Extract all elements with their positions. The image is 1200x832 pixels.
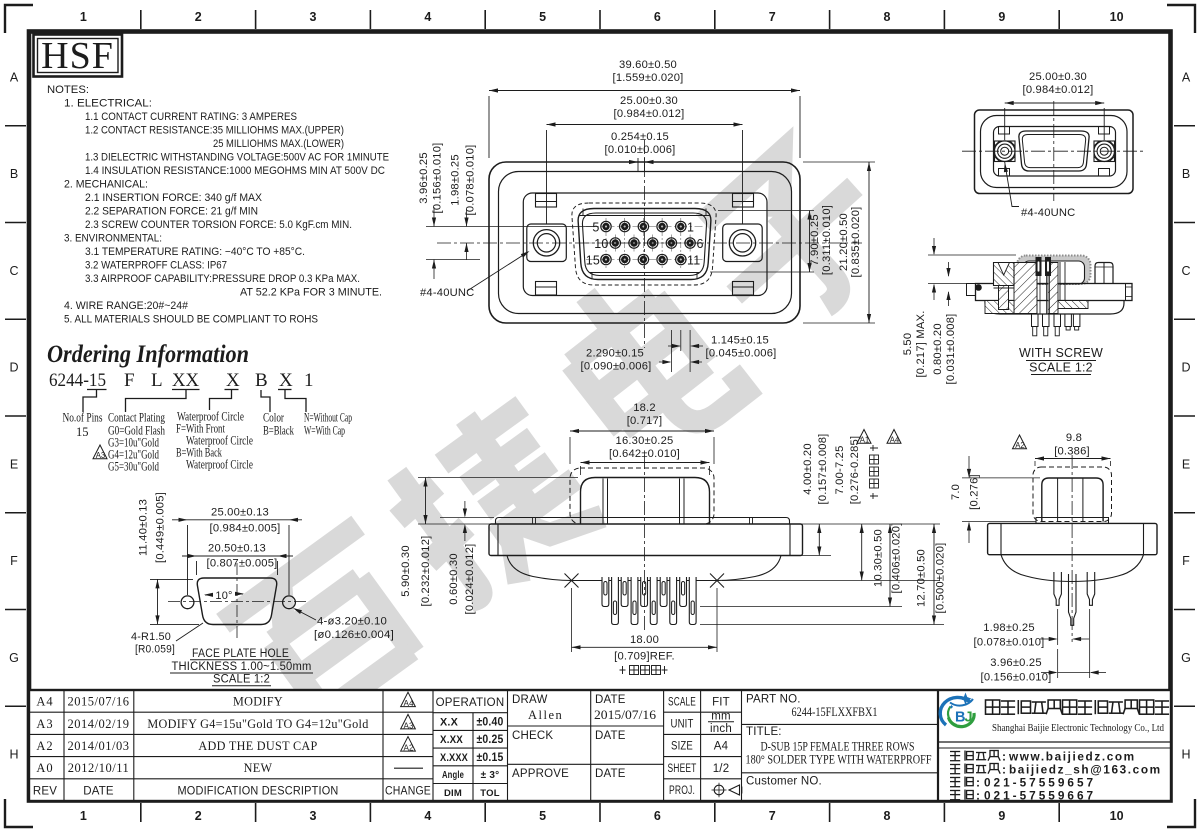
svg-text:5: 5 <box>592 221 599 235</box>
svg-text:7.00-7.25: 7.00-7.25 <box>834 445 846 494</box>
svg-text:AT 52.2 KPa FOR 3 MINUTE.: AT 52.2 KPa FOR 3 MINUTE. <box>240 287 382 299</box>
svg-text:4: 4 <box>424 10 431 24</box>
svg-text:18.00: 18.00 <box>630 634 659 646</box>
svg-text:[0.078±0.010]: [0.078±0.010] <box>465 145 477 216</box>
svg-text:3: 3 <box>310 10 317 24</box>
svg-text:10: 10 <box>594 237 608 251</box>
svg-text:A2: A2 <box>1015 441 1025 450</box>
svg-text:baijiedz_sh@163.com: baijiedz_sh@163.com <box>1009 763 1162 777</box>
svg-text:1: 1 <box>304 370 314 391</box>
svg-text:16.30±0.25: 16.30±0.25 <box>616 435 674 447</box>
svg-text:F: F <box>1182 554 1190 568</box>
svg-text:No.of Pins: No.of Pins <box>63 411 103 425</box>
svg-text:SCALE: SCALE <box>668 696 696 708</box>
svg-text:3.3 AIRPROOF CAPABILITY:PRESSU: 3.3 AIRPROOF CAPABILITY:PRESSURE DROP 0.… <box>85 273 360 285</box>
svg-text:[0.232±0.012]: [0.232±0.012] <box>420 536 432 607</box>
svg-text:B: B <box>255 370 268 391</box>
svg-text:[0.386]: [0.386] <box>1054 446 1090 458</box>
svg-text:MODIFICATION DESCRIPTION: MODIFICATION DESCRIPTION <box>178 785 339 797</box>
svg-text::: : <box>976 789 980 803</box>
svg-text:3: 3 <box>310 809 317 823</box>
svg-text:Allen: Allen <box>528 708 563 722</box>
svg-text:3.96±0.25: 3.96±0.25 <box>990 657 1042 669</box>
svg-text:D: D <box>1181 361 1190 375</box>
svg-text:X: X <box>226 370 240 391</box>
svg-text:1: 1 <box>80 809 87 823</box>
svg-text:11.40±0.13: 11.40±0.13 <box>138 499 150 556</box>
svg-text:20.50±0.13: 20.50±0.13 <box>208 543 266 555</box>
svg-text:[0.217] MAX.: [0.217] MAX. <box>915 310 927 377</box>
svg-text:2.290±0.15: 2.290±0.15 <box>586 348 644 360</box>
svg-text:DATE: DATE <box>83 785 114 797</box>
svg-text:4: 4 <box>424 809 431 823</box>
svg-text:21.20±0.50: 21.20±0.50 <box>838 213 850 271</box>
svg-text:2.1 INSERTION FORCE: 340 g/f M: 2.1 INSERTION FORCE: 340 g/f MAX <box>85 192 262 204</box>
svg-text:A2: A2 <box>404 743 414 752</box>
svg-text:5.50: 5.50 <box>902 333 914 356</box>
svg-text:1.4 INSULATION RESISTANCE:1000: 1.4 INSULATION RESISTANCE:1000 MEGOHMS M… <box>85 165 385 177</box>
svg-text:15: 15 <box>586 254 600 268</box>
svg-text:2.3 SCREW COUNTER TORSION FORC: 2.3 SCREW COUNTER TORSION FORCE: 5.0 KgF… <box>85 219 352 231</box>
svg-text:7: 7 <box>769 809 776 823</box>
svg-text:inch: inch <box>710 723 732 735</box>
svg-text:SCALE 1:2: SCALE 1:2 <box>213 674 270 686</box>
svg-text:SCALE 1:2: SCALE 1:2 <box>1029 361 1093 375</box>
svg-text:4. WIRE RANGE:20#~24#: 4. WIRE RANGE:20#~24# <box>64 300 188 312</box>
svg-text:3.96±0.25: 3.96±0.25 <box>418 152 430 204</box>
svg-text:2014/02/19: 2014/02/19 <box>68 717 130 731</box>
svg-text::: : <box>1002 763 1006 777</box>
svg-text:MODIFY: MODIFY <box>233 695 283 709</box>
svg-text:HSF: HSF <box>41 35 114 77</box>
svg-text:FIT: FIT <box>712 696 730 708</box>
svg-text::: : <box>976 776 980 790</box>
svg-text:2: 2 <box>195 10 202 24</box>
svg-text:1.98±0.25: 1.98±0.25 <box>450 154 462 206</box>
svg-text:9.8: 9.8 <box>1066 432 1082 444</box>
svg-text:10°: 10° <box>215 590 232 602</box>
svg-text:2: 2 <box>195 809 202 823</box>
svg-text:8: 8 <box>884 10 891 24</box>
svg-text:#4-40UNC: #4-40UNC <box>420 287 474 299</box>
svg-text:D: D <box>9 361 18 375</box>
svg-text:2015/07/16: 2015/07/16 <box>68 695 130 709</box>
svg-text:[0.406±0.020]: [0.406±0.020] <box>891 523 903 594</box>
svg-text:L: L <box>151 370 163 391</box>
svg-text:REV: REV <box>33 785 57 797</box>
svg-text:[0.807±0.005]: [0.807±0.005] <box>207 558 278 570</box>
svg-text:[0.709]REF.: [0.709]REF. <box>614 651 675 663</box>
svg-text:A0: A0 <box>36 761 53 775</box>
svg-text:1/2: 1/2 <box>713 763 730 775</box>
svg-text:10.30±0.50: 10.30±0.50 <box>873 529 885 587</box>
svg-text:B: B <box>10 167 18 181</box>
svg-text:H: H <box>9 748 18 762</box>
svg-text:2012/10/11: 2012/10/11 <box>68 761 129 775</box>
svg-text:39.60±0.50: 39.60±0.50 <box>619 59 677 71</box>
svg-text:6: 6 <box>654 809 661 823</box>
svg-text:CHECK: CHECK <box>512 730 553 742</box>
svg-text:2.2 SEPARATION FORCE: 21 g/f M: 2.2 SEPARATION FORCE: 21 g/f MIN <box>85 206 258 218</box>
svg-text:5: 5 <box>539 10 546 24</box>
svg-text:TOL: TOL <box>480 788 499 799</box>
svg-text:6: 6 <box>697 237 704 251</box>
svg-text:DRAW: DRAW <box>512 694 548 706</box>
svg-text:[0.449±0.005]: [0.449±0.005] <box>155 492 167 563</box>
svg-text:X.XXX: X.XXX <box>440 752 468 764</box>
svg-text:[R0.059]: [R0.059] <box>135 644 175 656</box>
svg-text:FACE PLATE HOLE: FACE PLATE HOLE <box>192 648 289 660</box>
svg-text:Ordering Information: Ordering Information <box>47 341 249 368</box>
svg-text:[0.157±0.008]: [0.157±0.008] <box>817 434 829 505</box>
svg-text:A: A <box>10 70 19 84</box>
svg-text:7: 7 <box>769 10 776 24</box>
svg-text:±0.40: ±0.40 <box>477 716 504 728</box>
svg-text:A3: A3 <box>404 721 414 730</box>
svg-text:25.00±0.30: 25.00±0.30 <box>1029 71 1087 83</box>
svg-text:[0.835±0.020]: [0.835±0.020] <box>850 207 862 278</box>
svg-text:W=With Cap: W=With Cap <box>304 424 345 438</box>
svg-text:Angle: Angle <box>442 770 464 781</box>
svg-text:THICKNESS 1.00~1.50mm: THICKNESS 1.00~1.50mm <box>172 661 312 673</box>
svg-text:1. ELECTRICAL:: 1. ELECTRICAL: <box>64 98 152 110</box>
svg-text:D-SUB 15P FEMALE THREE ROWS: D-SUB 15P FEMALE THREE ROWS <box>761 740 915 754</box>
svg-text:5: 5 <box>539 809 546 823</box>
svg-text:CHANGE: CHANGE <box>385 785 431 797</box>
svg-text:G5=30u"Gold: G5=30u"Gold <box>108 460 160 474</box>
svg-text:3.1 TEMPERATURE RATING: −40°C: 3.1 TEMPERATURE RATING: −40°C TO +85°C. <box>85 246 305 258</box>
svg-text:[0.090±0.006]: [0.090±0.006] <box>581 361 652 373</box>
svg-text:C: C <box>1181 264 1190 278</box>
svg-text::: : <box>1002 750 1006 764</box>
svg-text:Contact Plating: Contact Plating <box>108 411 166 425</box>
svg-text:ADD THE DUST CAP: ADD THE DUST CAP <box>198 739 317 753</box>
svg-text:180° SOLDER TYPE WITH WATERPR: 180° SOLDER TYPE WITH WATERPROFF <box>746 753 932 767</box>
svg-text:G: G <box>9 651 19 665</box>
svg-text:Shanghai Baijie Electronic Tec: Shanghai Baijie Electronic Technology Co… <box>992 722 1164 734</box>
svg-text:G: G <box>1181 651 1191 665</box>
svg-text:[0.276]: [0.276] <box>969 474 981 510</box>
svg-text:A4: A4 <box>36 695 53 709</box>
svg-text:1.98±0.25: 1.98±0.25 <box>983 622 1035 634</box>
svg-text:PART NO.: PART NO. <box>746 694 801 706</box>
svg-text:1: 1 <box>687 221 694 235</box>
svg-text:25 MILLIOHMS MAX.(LOWER): 25 MILLIOHMS MAX.(LOWER) <box>213 138 344 150</box>
svg-text:SIZE: SIZE <box>671 741 693 753</box>
svg-text:9: 9 <box>998 809 1005 823</box>
svg-text:DATE: DATE <box>595 694 626 706</box>
svg-text:NEW: NEW <box>244 761 273 775</box>
svg-text:0.254±0.15: 0.254±0.15 <box>611 131 669 143</box>
svg-text:25.00±0.13: 25.00±0.13 <box>211 507 269 519</box>
svg-text:X: X <box>279 370 293 391</box>
svg-text:11: 11 <box>687 254 700 268</box>
svg-text:E: E <box>10 457 18 471</box>
svg-text:Waterproof Circle: Waterproof Circle <box>186 458 253 472</box>
svg-text:1: 1 <box>80 10 87 24</box>
svg-text:A4: A4 <box>890 436 900 445</box>
svg-text:F: F <box>10 554 18 568</box>
svg-text:6244-15: 6244-15 <box>49 370 106 391</box>
svg-text:XX: XX <box>172 370 199 391</box>
svg-text:A1: A1 <box>860 436 870 445</box>
svg-text:15: 15 <box>76 425 89 439</box>
svg-text:#4-40UNC: #4-40UNC <box>1021 207 1075 219</box>
svg-text:[0.045±0.006]: [0.045±0.006] <box>706 348 777 360</box>
svg-text:[1.559±0.020]: [1.559±0.020] <box>613 72 684 84</box>
svg-text:X.XX: X.XX <box>440 734 463 746</box>
svg-text:0.80±0.20: 0.80±0.20 <box>932 323 944 375</box>
svg-text:MODIFY G4=15u"Gold TO G4=12u"G: MODIFY G4=15u"Gold TO G4=12u"Gold <box>147 717 368 731</box>
svg-text:[0.984±0.012]: [0.984±0.012] <box>614 108 685 120</box>
svg-text:OPERATION: OPERATION <box>436 697 505 709</box>
svg-text:1.1 CONTACT CURRENT RATING: 3: 1.1 CONTACT CURRENT RATING: 3 AMPERES <box>85 111 297 123</box>
svg-text:18.2: 18.2 <box>633 402 656 414</box>
svg-text:±0.15: ±0.15 <box>477 752 504 764</box>
svg-text:A3: A3 <box>96 451 106 460</box>
svg-text:[0.984±0.005]: [0.984±0.005] <box>210 523 281 535</box>
svg-text:4-R1.50: 4-R1.50 <box>131 631 171 643</box>
svg-text:± 3°: ± 3° <box>481 770 500 781</box>
svg-text:0.60±0.30: 0.60±0.30 <box>448 553 460 605</box>
svg-text:3. ENVIRONMENTAL:: 3. ENVIRONMENTAL: <box>64 233 162 245</box>
svg-text:www.baijiedz.com: www.baijiedz.com <box>1008 750 1136 764</box>
svg-text:2. MECHANICAL:: 2. MECHANICAL: <box>64 179 148 191</box>
svg-text:PROJ.: PROJ. <box>669 785 695 797</box>
svg-text:10: 10 <box>1110 809 1124 823</box>
svg-text:[0.276-0.285]: [0.276-0.285] <box>849 436 861 505</box>
svg-text:DATE: DATE <box>595 730 626 742</box>
svg-text:1.3 DIELECTRIC WITHSTANDING VO: 1.3 DIELECTRIC WITHSTANDING VOLTAGE:500V… <box>85 152 389 164</box>
svg-text:Customer NO.: Customer NO. <box>746 776 822 788</box>
svg-text:2014/01/03: 2014/01/03 <box>68 739 130 753</box>
svg-text:DATE: DATE <box>595 768 626 780</box>
svg-text:mm: mm <box>711 711 731 723</box>
svg-text:021-57559667: 021-57559667 <box>984 789 1096 803</box>
svg-text:2015/07/16: 2015/07/16 <box>594 708 656 722</box>
svg-text:4-ø3.20±0.10: 4-ø3.20±0.10 <box>317 616 387 628</box>
svg-text:9: 9 <box>998 10 1005 24</box>
svg-text:[0.010±0.006]: [0.010±0.006] <box>605 144 676 156</box>
svg-text:WITH SCREW: WITH SCREW <box>1019 346 1103 360</box>
svg-text:SHEET: SHEET <box>668 763 697 775</box>
svg-text:APPROVE: APPROVE <box>512 768 569 780</box>
svg-text:B=Black: B=Black <box>263 424 295 438</box>
svg-text:C: C <box>9 264 18 278</box>
svg-text:10: 10 <box>1110 10 1124 24</box>
svg-text:TITLE:: TITLE: <box>746 726 782 738</box>
svg-text:8: 8 <box>884 809 891 823</box>
svg-text:A: A <box>1182 70 1191 84</box>
svg-text:021-57559657: 021-57559657 <box>984 776 1096 790</box>
svg-text:1.145±0.15: 1.145±0.15 <box>711 335 769 347</box>
svg-text:[ø0.126±0.004]: [ø0.126±0.004] <box>314 629 394 641</box>
svg-text:[0.031±0.008]: [0.031±0.008] <box>945 314 957 385</box>
svg-text:1.2 CONTACT RESISTANCE:35 MILL: 1.2 CONTACT RESISTANCE:35 MILLIOHMS MAX.… <box>85 125 344 137</box>
svg-text:[0.311±0.010]: [0.311±0.010] <box>821 205 833 275</box>
svg-text:E: E <box>1182 457 1190 471</box>
svg-text:7.90±0.25: 7.90±0.25 <box>809 214 821 266</box>
svg-text:H: H <box>1181 748 1190 762</box>
svg-text:J: J <box>965 710 973 726</box>
svg-text:NOTES:: NOTES: <box>47 84 89 96</box>
svg-text:6244-15FLXXFBX1: 6244-15FLXXFBX1 <box>792 705 878 719</box>
svg-text:UNIT: UNIT <box>671 719 694 731</box>
svg-text:[0.156±0.010]: [0.156±0.010] <box>981 672 1052 684</box>
svg-text:N=Without Cap: N=Without Cap <box>304 411 352 425</box>
svg-text:A2: A2 <box>36 739 53 753</box>
svg-text:[0.984±0.012]: [0.984±0.012] <box>1023 84 1094 96</box>
svg-text:4.00±0.20: 4.00±0.20 <box>802 443 814 495</box>
svg-text:7.0: 7.0 <box>950 484 962 500</box>
svg-text:F: F <box>124 370 135 391</box>
svg-text:25.00±0.30: 25.00±0.30 <box>620 95 678 107</box>
svg-text:[0.642±0.010]: [0.642±0.010] <box>609 448 680 460</box>
svg-text:5. ALL MATERIALS SHOULD BE COM: 5. ALL MATERIALS SHOULD BE COMPLIANT TO … <box>64 314 318 326</box>
svg-text:±0.25: ±0.25 <box>477 734 504 746</box>
svg-text:[0.500±0.020]: [0.500±0.020] <box>935 543 947 614</box>
svg-text:Color: Color <box>263 411 285 425</box>
svg-text:[0.024±0.012]: [0.024±0.012] <box>464 544 476 615</box>
svg-text:B: B <box>1182 167 1190 181</box>
svg-text:6: 6 <box>654 10 661 24</box>
svg-text:[0.717]: [0.717] <box>627 415 663 427</box>
svg-text:A4: A4 <box>404 699 414 708</box>
svg-text:[0.156±0.010]: [0.156±0.010] <box>432 143 444 214</box>
svg-text:DIM: DIM <box>444 788 462 799</box>
svg-text:12.70±0.50: 12.70±0.50 <box>916 549 928 607</box>
svg-text:X.X: X.X <box>440 716 458 728</box>
svg-text:3.2 WATERPROFF CLASS: IP67: 3.2 WATERPROFF CLASS: IP67 <box>85 260 227 272</box>
svg-text:[0.078±0.010]: [0.078±0.010] <box>974 637 1045 649</box>
svg-text:A3: A3 <box>36 717 53 731</box>
svg-text:5.90±0.30: 5.90±0.30 <box>400 545 412 597</box>
svg-text:A4: A4 <box>714 741 729 753</box>
